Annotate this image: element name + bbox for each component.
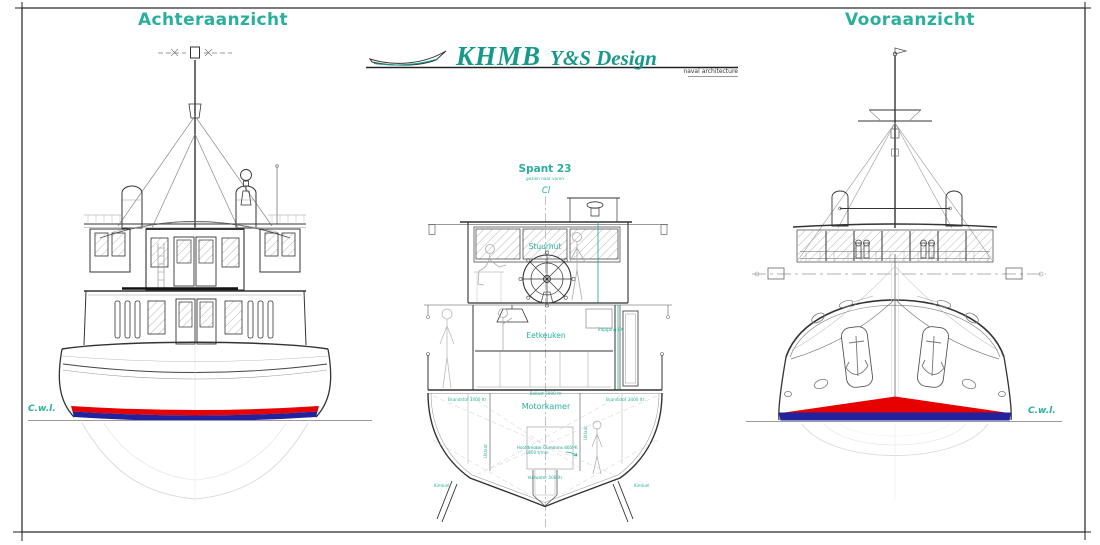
galley-label: Eetkeuken <box>515 332 577 340</box>
exhaust-port-label: Uitlaat <box>484 444 489 458</box>
drawing-sheet: Achteraanzicht Vooraanzicht KHMB Y&S Des… <box>0 0 1100 545</box>
staircase-label: Trapgang BK <box>597 328 623 333</box>
logo-studio-name: Y&S Design <box>550 46 657 71</box>
bilge-keel-starboard-label: Kimkiel <box>634 484 649 489</box>
tank-center-label: Ballast 5000 ltr <box>530 392 561 397</box>
tank-starboard-label: Brandstof 3400 ltr <box>606 398 644 403</box>
naval-drawing-canvas <box>0 0 1100 545</box>
logo-company-name: KHMB <box>456 41 541 72</box>
bow-view-title: Vooraanzicht <box>845 11 967 30</box>
wheelhouse-label: Stuurhut <box>517 243 573 251</box>
bilge-keel-port-label: Kimkiel <box>434 484 449 489</box>
waterline-label-left: C.w.l. <box>28 405 56 415</box>
logo-tagline: naval architecture <box>650 69 738 76</box>
waterline-label-right: C.w.l. <box>1028 407 1056 417</box>
logo: KHMB Y&S Design <box>456 41 657 72</box>
section-subtitle: gezien naar voren <box>522 177 568 182</box>
centerline-label: Cl <box>535 187 557 196</box>
engine-note-line2: 1800 t/min <box>517 451 558 456</box>
exhaust-starboard-label: Uitlaat <box>584 426 589 440</box>
waste-tank-label: Vuilwater 500 ltr <box>528 476 563 481</box>
stern-view-linework <box>28 47 372 503</box>
section-title: Spant 23 <box>512 164 578 176</box>
engine-room-label: Motorkamer <box>515 403 577 412</box>
sheet-frame <box>13 2 1091 541</box>
tank-port-label: Brandstof 3400 ltr <box>448 398 486 403</box>
bow-view-linework <box>746 48 1062 500</box>
stern-view-title: Achteraanzicht <box>138 11 258 30</box>
